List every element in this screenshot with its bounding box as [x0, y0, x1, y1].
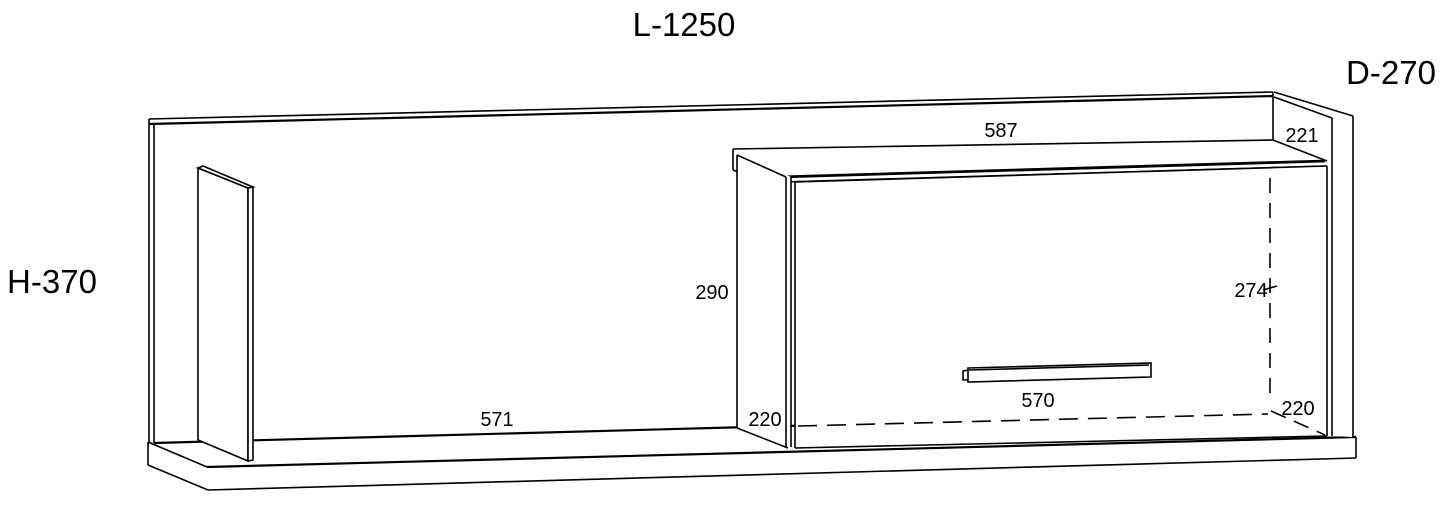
- door-face: [795, 166, 1327, 448]
- divider-side-face: [198, 168, 248, 461]
- cabinet-left-side-face: [737, 155, 791, 447]
- cabinet-left-side: [737, 155, 791, 448]
- dim-interior-height-label: 274: [1234, 280, 1267, 302]
- dim-length-label: L-1250: [633, 6, 736, 43]
- dim-top-right-depth-label: 221: [1285, 125, 1318, 147]
- right-side-top-outer-edge: [1274, 92, 1353, 116]
- dim-height-label: H-370: [7, 263, 97, 300]
- dim-left-bottom-depth-label: 220: [748, 409, 781, 431]
- dim-shelf-width-label: 571: [480, 409, 513, 431]
- dim-right-bottom-depth-label: 220: [1281, 398, 1314, 420]
- dim-top-width-label: 587: [984, 120, 1017, 142]
- furniture-technical-drawing: L-1250 D-270 H-370 587 221 290 274 571 2…: [0, 0, 1442, 512]
- wall-shelf-line-drawing: L-1250 D-270 H-370 587 221 290 274 571 2…: [0, 0, 1442, 512]
- divider-front-edge-face: [248, 187, 253, 461]
- dim-depth-label: D-270: [1346, 54, 1436, 91]
- left-divider: [198, 166, 253, 461]
- cabinet-door: [795, 166, 1327, 448]
- dim-door-width-label: 570: [1021, 390, 1054, 412]
- dim-side-height-label: 290: [695, 282, 728, 304]
